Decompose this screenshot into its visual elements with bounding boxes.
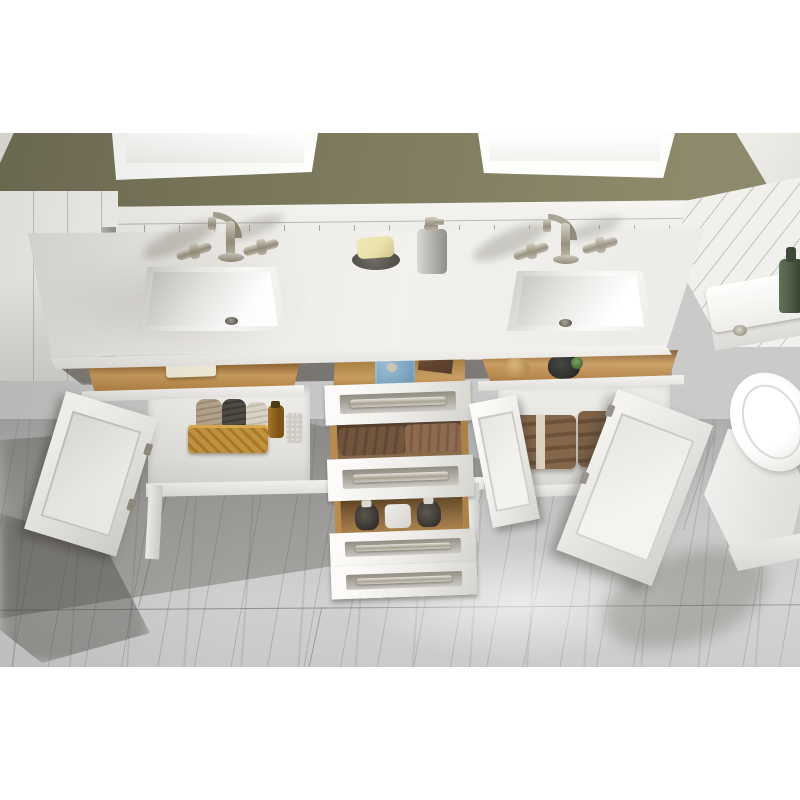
glass-bottle-left-cap [361, 500, 371, 507]
soap-dispenser [417, 229, 447, 274]
toilet-tank-bottle [779, 259, 800, 313]
glass-bottle-right-cap [423, 497, 433, 504]
amber-bottle-cap [271, 401, 280, 408]
mirror-left-glass [126, 133, 304, 163]
brown-towel-right [405, 423, 462, 453]
faucet-left-spout-tip [208, 217, 216, 230]
sink-left [137, 267, 287, 331]
product-photo-canvas [0, 0, 800, 800]
faucet-right-spout-base [553, 255, 579, 264]
tray-right-puck [504, 358, 529, 378]
toilet-tank-bottle-neck [786, 247, 796, 262]
soap-dispenser-spout [434, 219, 444, 225]
drawer-middle-open-box [330, 421, 469, 460]
towel-ribbon-left [536, 415, 545, 469]
tray-right-bottle-cap [571, 357, 583, 369]
faucet-left-spout-base [218, 253, 244, 262]
basket [188, 425, 268, 453]
faucet-right-spout-column [561, 223, 570, 259]
mirror-left [112, 133, 318, 180]
amber-bottle [268, 405, 284, 438]
drawer-bottom-face-upper [329, 528, 476, 566]
sink-right [507, 271, 653, 331]
faucet-left-spout-column [226, 221, 235, 257]
mirror-right [478, 133, 675, 178]
toilet-flush-button [733, 325, 747, 336]
faucet-right-spout-tip [543, 219, 551, 232]
brown-towel-left [339, 426, 406, 456]
drawer-bottom-face-lower [331, 561, 478, 599]
door-left-recess [40, 411, 142, 537]
soap-bar [356, 236, 394, 260]
mirror-right-glass [490, 133, 660, 161]
washcloth-knot [387, 363, 397, 372]
drawer-middle-face [327, 454, 474, 501]
drawer-top-face [324, 381, 471, 426]
bathroom-vanity-photo [0, 133, 800, 667]
sink-right-bowl [516, 276, 644, 326]
drawer-bottom-open-box [334, 497, 469, 534]
white-cloth [384, 504, 411, 529]
sink-left-drain [225, 317, 238, 325]
speckled-canister [286, 413, 303, 443]
sink-right-drain [559, 319, 572, 327]
drawer-stack [324, 381, 477, 600]
sink-left-bowl [146, 272, 278, 326]
